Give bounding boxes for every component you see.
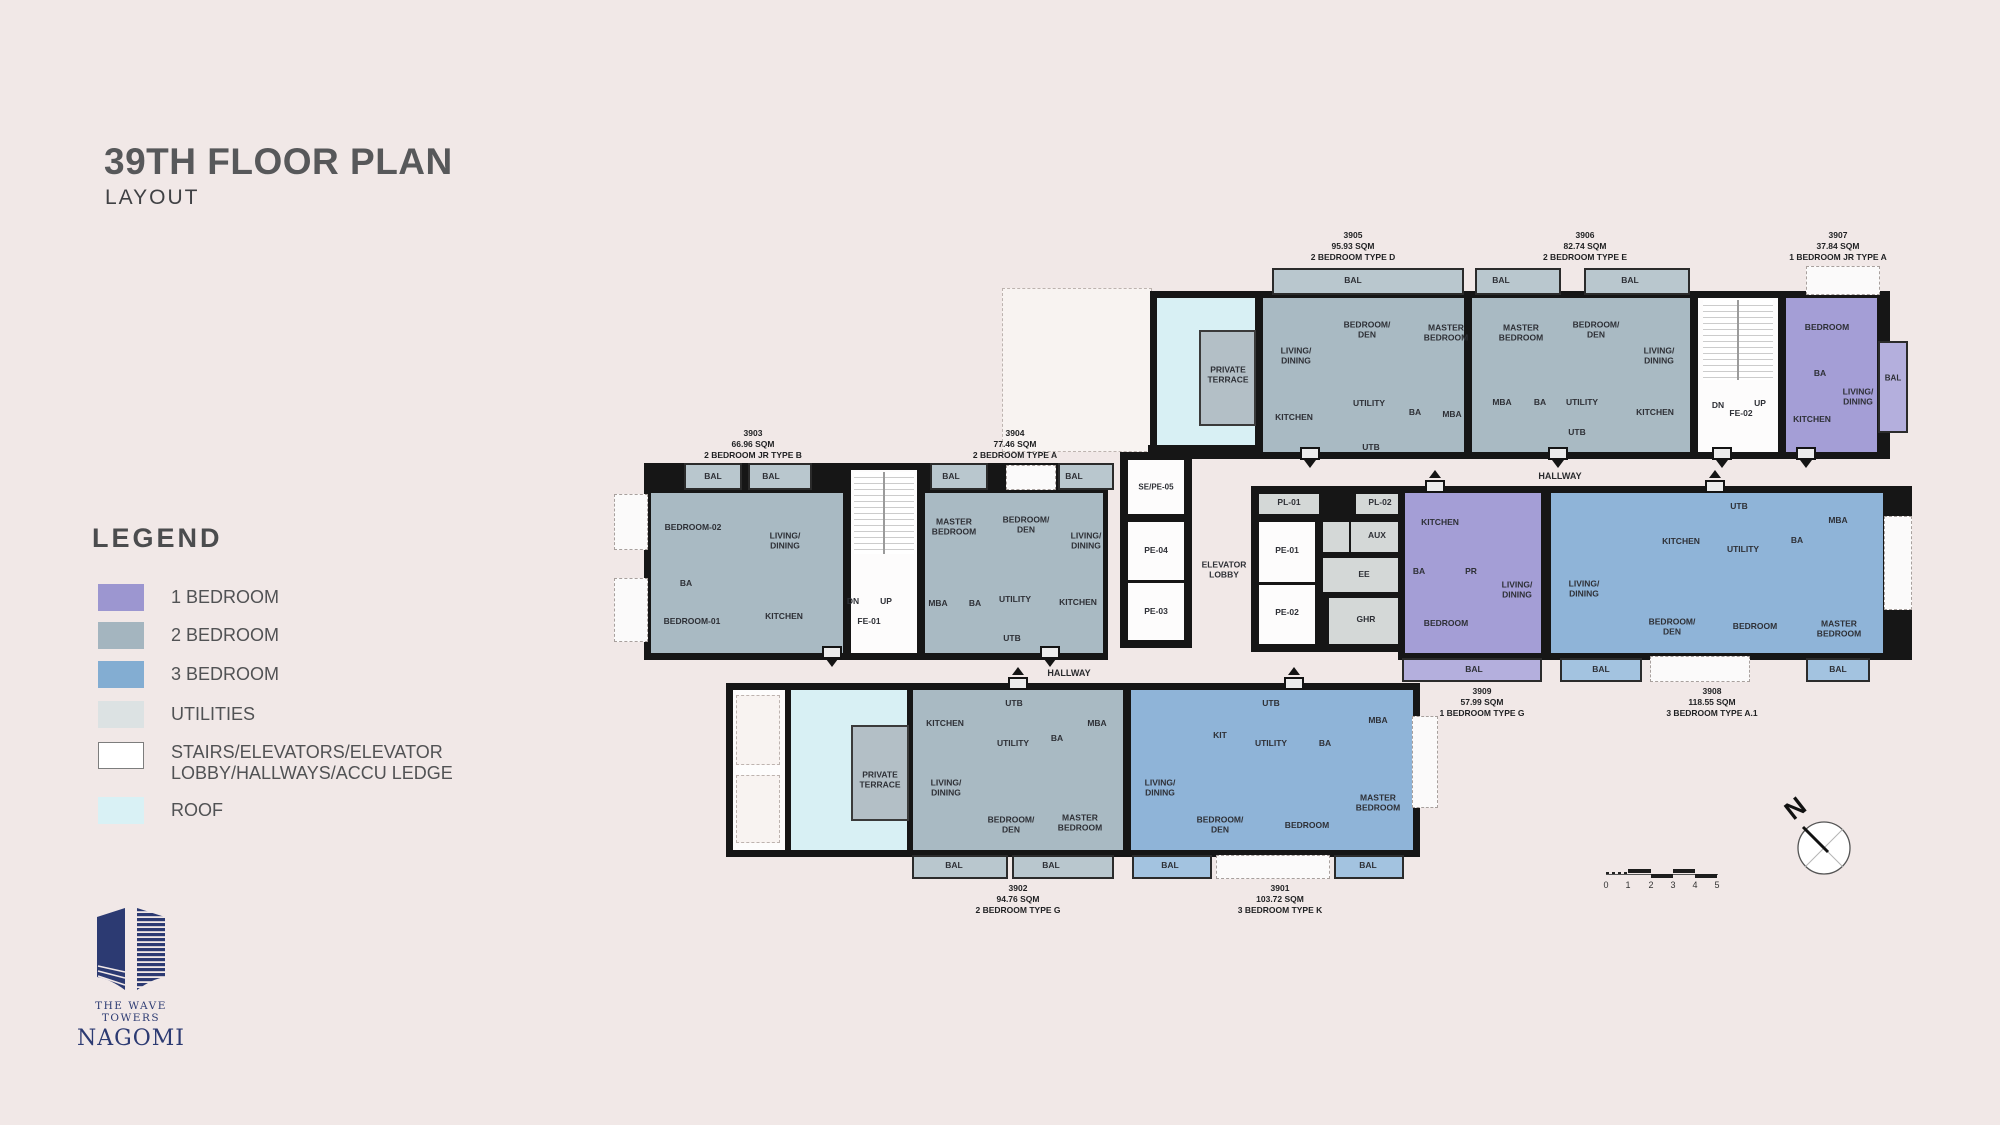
room-label-kitchen: KITCHEN (1275, 413, 1313, 423)
elevator-lobby-label: ELEVATOR LOBBY (1202, 560, 1247, 579)
accu-ledge (1006, 465, 1056, 490)
accu-ledge (614, 578, 648, 642)
room-label-master-bedroom: MASTER BEDROOM (1499, 323, 1543, 342)
room-label-utb: UTB (1568, 428, 1585, 438)
accu-ledge (1216, 855, 1330, 879)
door-notch (1705, 480, 1725, 493)
accu-ledge-3907 (1806, 266, 1880, 295)
stair-dn-label: DN (847, 597, 859, 607)
room-label-mba: MBA (1442, 410, 1461, 420)
accu-ledge (1412, 716, 1438, 808)
room-label-ba: BA (680, 579, 692, 589)
room-label-living-dining: LIVING/ DINING (1569, 579, 1600, 598)
legend-swatch-3-bedroom (98, 661, 144, 688)
accu-ledge (736, 695, 780, 765)
room-label-utility: UTILITY (999, 595, 1031, 605)
room-label-bal: BAL (1042, 861, 1059, 871)
room-label-private-terrace: PRIVATE TERRACE (1207, 365, 1248, 384)
room-label-utility: UTILITY (1566, 398, 1598, 408)
room-label-kit: KIT (1213, 731, 1227, 741)
legend-label-3-bedroom: 3 BEDROOM (171, 664, 279, 685)
room-label-utb: UTB (1362, 443, 1379, 453)
stair-up-label: UP (1754, 399, 1766, 409)
unit-3901-block (1128, 687, 1416, 853)
room-label-kitchen: KITCHEN (1793, 415, 1831, 425)
stair-rail-fe-01 (883, 472, 885, 554)
room-label-bal: BAL (1829, 665, 1846, 675)
legend-title: LEGEND (92, 523, 223, 554)
room-label-utb: UTB (1005, 699, 1022, 709)
door-notch (1300, 447, 1320, 460)
room-label-kitchen: KITCHEN (1636, 408, 1674, 418)
door-swing (826, 659, 838, 667)
logo-line-nagomi: NAGOMI (66, 1026, 196, 1051)
legend-swatch-stairs (98, 742, 144, 769)
scale-tick: 5 (1714, 880, 1719, 890)
door-swing (1012, 667, 1024, 675)
unit-3903-block (648, 490, 846, 656)
room-label-utb: UTB (1003, 634, 1020, 644)
unit-label-3902: 3902 94.76 SQM 2 BEDROOM TYPE G (975, 883, 1060, 916)
scale-tick: 4 (1692, 880, 1697, 890)
scale-bar-segment (1651, 874, 1673, 878)
room-label-bedroom: BEDROOM (1805, 323, 1849, 333)
door-notch (1425, 480, 1445, 493)
elevator-label-pe-04: PE-04 (1144, 546, 1168, 556)
room-label-ghr: GHR (1357, 615, 1376, 625)
unit-label-3909: 3909 57.99 SQM 1 BEDROOM TYPE G (1439, 686, 1524, 719)
room-label-bedroom-den: BEDROOM/ DEN (1649, 617, 1696, 636)
door-notch (1796, 447, 1816, 460)
room-label-mba: MBA (1087, 719, 1106, 729)
room-label-bal: BAL (1621, 276, 1638, 286)
legend-label-2-bedroom: 2 BEDROOM (171, 625, 279, 646)
balcony-3905 (1272, 268, 1464, 295)
unit-label-3904: 3904 77.46 SQM 2 BEDROOM TYPE A (973, 428, 1057, 461)
room-label-living-dining: LIVING/ DINING (931, 778, 962, 797)
legend-swatch-roof (98, 797, 144, 824)
balcony-3907 (1878, 341, 1908, 433)
room-label-aux: AUX (1368, 531, 1386, 541)
room-label-utility: UTILITY (997, 739, 1029, 749)
unit-label-3901: 3901 103.72 SQM 3 BEDROOM TYPE K (1238, 883, 1323, 916)
scale-bar-segment (1628, 869, 1651, 873)
wave-towers-logo-icon (95, 908, 167, 996)
room-label-ba: BA (1791, 536, 1803, 546)
room-label-bedroom-02: BEDROOM-02 (665, 523, 722, 533)
door-swing (1429, 470, 1441, 478)
logo-text: THE WAVE TOWERS NAGOMI (66, 1000, 196, 1051)
unit-3907-block (1783, 295, 1880, 455)
room-label-utb: UTB (1262, 699, 1279, 709)
room-label-bedroom: BEDROOM (1285, 821, 1329, 831)
room-label-pl-01: PL-01 (1277, 498, 1300, 508)
door-notch (1284, 677, 1304, 690)
room-label-kitchen: KITCHEN (1421, 518, 1459, 528)
stair-up-label: UP (880, 597, 892, 607)
scale-bar-segment (1695, 874, 1717, 878)
accu-ledge (1650, 656, 1750, 682)
room-label-bal: BAL (1161, 861, 1178, 871)
elevator-label-pe-01: PE-01 (1275, 546, 1299, 556)
room-label-utility: UTILITY (1353, 399, 1385, 409)
door-swing (1552, 460, 1564, 468)
elevator-divider (1257, 582, 1317, 585)
room-label-living-dining: LIVING/ DINING (1502, 580, 1533, 599)
room-label-ee: EE (1358, 570, 1369, 580)
room-label-master-bedroom: MASTER BEDROOM (1424, 323, 1468, 342)
room-label-master-bedroom: MASTER BEDROOM (1356, 793, 1400, 812)
room-label-living-dining: LIVING/ DINING (1644, 346, 1675, 365)
legend-swatch-1-bedroom (98, 584, 144, 611)
stair-rail-fe-02 (1737, 300, 1739, 380)
room-label-utility: UTILITY (1727, 545, 1759, 555)
stair-fe-02-label: FE-02 (1729, 409, 1752, 419)
hallway-label-lower: HALLWAY (1047, 668, 1090, 678)
door-notch (822, 646, 842, 659)
room-label-bedroom-den: BEDROOM/ DEN (1344, 320, 1391, 339)
door-notch (1040, 646, 1060, 659)
room-label-ba: BA (1413, 567, 1425, 577)
room-label-ba: BA (1814, 369, 1826, 379)
room-label-bal: BAL (1465, 665, 1482, 675)
room-label-utility: UTILITY (1255, 739, 1287, 749)
room-label-living-dining: LIVING/ DINING (1071, 531, 1102, 550)
room-label-bal: BAL (1492, 276, 1509, 286)
room-label-living-dining: LIVING/ DINING (1281, 346, 1312, 365)
room-label-mba: MBA (1368, 716, 1387, 726)
balcony-3906-a (1475, 268, 1561, 295)
legend-swatch-utilities (98, 701, 144, 728)
room-label-living-dining: LIVING/ DINING (1843, 387, 1874, 406)
room-label-kitchen: KITCHEN (1662, 537, 1700, 547)
room-label-kitchen: KITCHEN (765, 612, 803, 622)
door-notch (1712, 447, 1732, 460)
room-label-bal: BAL (762, 472, 779, 482)
elevator-label-pe-02: PE-02 (1275, 608, 1299, 618)
door-swing (1800, 460, 1812, 468)
room-label-master-bedroom: MASTER BEDROOM (1817, 619, 1861, 638)
floor-plan-page: 39TH FLOOR PLAN LAYOUT LEGEND 1 BEDROOM … (0, 0, 2000, 1125)
legend-swatch-2-bedroom (98, 622, 144, 649)
room-label-master-bedroom: MASTER BEDROOM (932, 517, 976, 536)
room-label-pr: PR (1465, 567, 1477, 577)
balcony-3903-b (748, 463, 812, 490)
legend-label-utilities: UTILITIES (171, 704, 255, 725)
door-notch (1008, 677, 1028, 690)
room-label-bal: BAL (945, 861, 962, 871)
unit-label-3906: 3906 82.74 SQM 2 BEDROOM TYPE E (1543, 230, 1627, 263)
scale-tick: 2 (1648, 880, 1653, 890)
room-label-bedroom-den: BEDROOM/ DEN (1197, 815, 1244, 834)
accu-ledge (1884, 516, 1912, 610)
unit-label-3907: 3907 37.84 SQM 1 BEDROOM JR TYPE A (1789, 230, 1886, 263)
accu-ledge (736, 775, 780, 843)
room-label-bedroom-den: BEDROOM/ DEN (1573, 320, 1620, 339)
hallway-label-upper: HALLWAY (1538, 471, 1581, 481)
balcony-3902-b (1012, 855, 1114, 879)
room-label-utb: UTB (1730, 502, 1747, 512)
room-label-bal: BAL (1344, 276, 1361, 286)
page-title: 39TH FLOOR PLAN (104, 141, 453, 183)
elevator-label-se-pe-05: SE/PE-05 (1138, 484, 1173, 493)
room-label-bedroom-den: BEDROOM/ DEN (1003, 515, 1050, 534)
scale-bar-segment (1673, 869, 1695, 873)
page-subtitle: LAYOUT (105, 186, 199, 210)
room-label-living-dining: LIVING/ DINING (1145, 778, 1176, 797)
room-label-bal: BAL (1065, 472, 1082, 482)
door-notch (1548, 447, 1568, 460)
scale-tick: 3 (1670, 880, 1675, 890)
door-swing (1709, 470, 1721, 478)
room-label-ba: BA (969, 599, 981, 609)
room-label-private-terrace: PRIVATE TERRACE (859, 770, 900, 789)
unit-label-3905: 3905 95.93 SQM 2 BEDROOM TYPE D (1311, 230, 1396, 263)
room-label-ba: BA (1319, 739, 1331, 749)
legend-label-1-bedroom: 1 BEDROOM (171, 587, 279, 608)
room-filler (1321, 520, 1351, 554)
room-label-ba: BA (1051, 734, 1063, 744)
elevator-label-pe-03: PE-03 (1144, 607, 1168, 617)
room-label-pl-02: PL-02 (1368, 498, 1391, 508)
door-swing (1288, 667, 1300, 675)
unit-label-3903: 3903 66.96 SQM 2 BEDROOM JR TYPE B (704, 428, 802, 461)
room-label-bedroom: BEDROOM (1424, 619, 1468, 629)
room-label-bedroom-den: BEDROOM/ DEN (988, 815, 1035, 834)
room-label-bal: BAL (1885, 375, 1901, 384)
legend-label-roof: ROOF (171, 800, 223, 821)
room-label-ba: BA (1534, 398, 1546, 408)
room-label-bal: BAL (942, 472, 959, 482)
door-swing (1044, 659, 1056, 667)
room-label-kitchen: KITCHEN (1059, 598, 1097, 608)
room-label-kitchen: KITCHEN (926, 719, 964, 729)
stair-dn-label: DN (1712, 401, 1724, 411)
door-swing (1304, 460, 1316, 468)
room-label-bedroom-01: BEDROOM-01 (664, 617, 721, 627)
room-label-bedroom: BEDROOM (1733, 622, 1777, 632)
scale-tick: 0 (1603, 880, 1608, 890)
scale-tick: 1 (1625, 880, 1630, 890)
unit-label-3908: 3908 118.55 SQM 3 BEDROOM TYPE A.1 (1666, 686, 1757, 719)
compass-icon (1796, 820, 1852, 876)
room-label-bal: BAL (1592, 665, 1609, 675)
room-label-master-bedroom: MASTER BEDROOM (1058, 813, 1102, 832)
room-label-mba: MBA (1492, 398, 1511, 408)
door-swing (1716, 460, 1728, 468)
elevator-divider (1126, 580, 1186, 583)
room-label-mba: MBA (928, 599, 947, 609)
logo-line-wave-towers: THE WAVE TOWERS (66, 1000, 196, 1024)
room-label-living-dining: LIVING/ DINING (770, 531, 801, 550)
room-label-bal: BAL (704, 472, 721, 482)
room-label-ba: BA (1409, 408, 1421, 418)
stair-fe-01-label: FE-01 (857, 617, 880, 627)
room-label-bal: BAL (1359, 861, 1376, 871)
accu-ledge (614, 494, 648, 550)
legend-label-stairs: STAIRS/ELEVATORS/ELEVATOR LOBBY/HALLWAYS… (171, 742, 453, 784)
room-label-mba: MBA (1828, 516, 1847, 526)
